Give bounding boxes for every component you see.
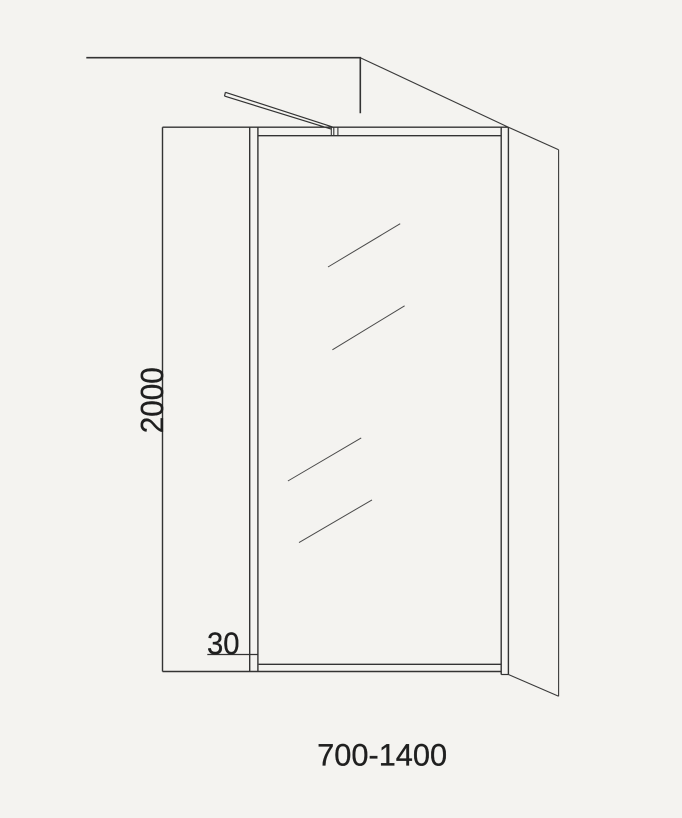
svg-text:30: 30 [207, 626, 240, 661]
svg-text:700-1400: 700-1400 [317, 738, 447, 773]
svg-text:2000: 2000 [134, 367, 170, 433]
